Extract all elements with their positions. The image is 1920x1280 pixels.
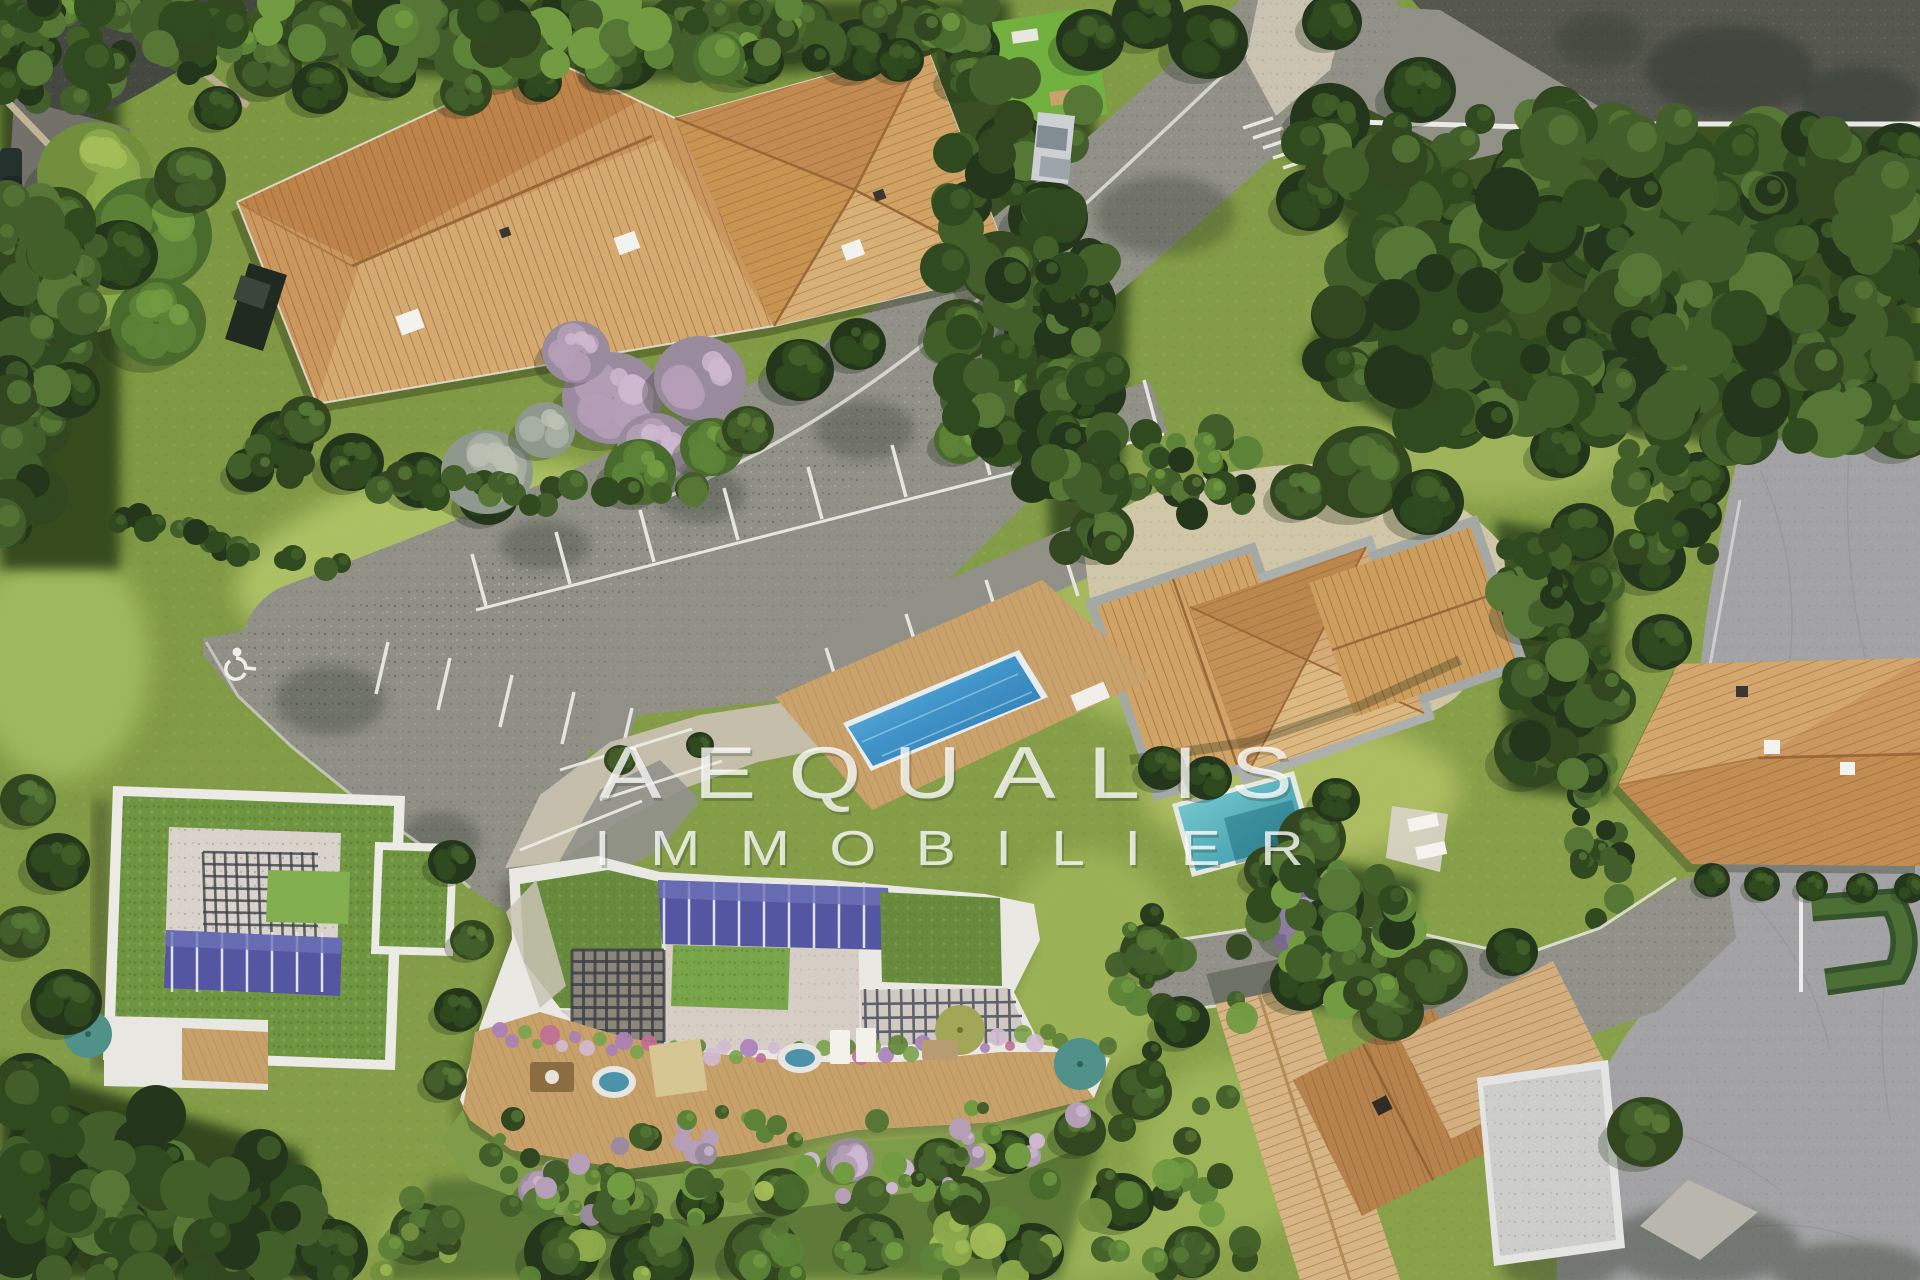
svg-text:IMMOBILIER: IMMOBILIER <box>594 822 1343 876</box>
svg-text:AEQUALIS: AEQUALIS <box>599 733 1325 814</box>
